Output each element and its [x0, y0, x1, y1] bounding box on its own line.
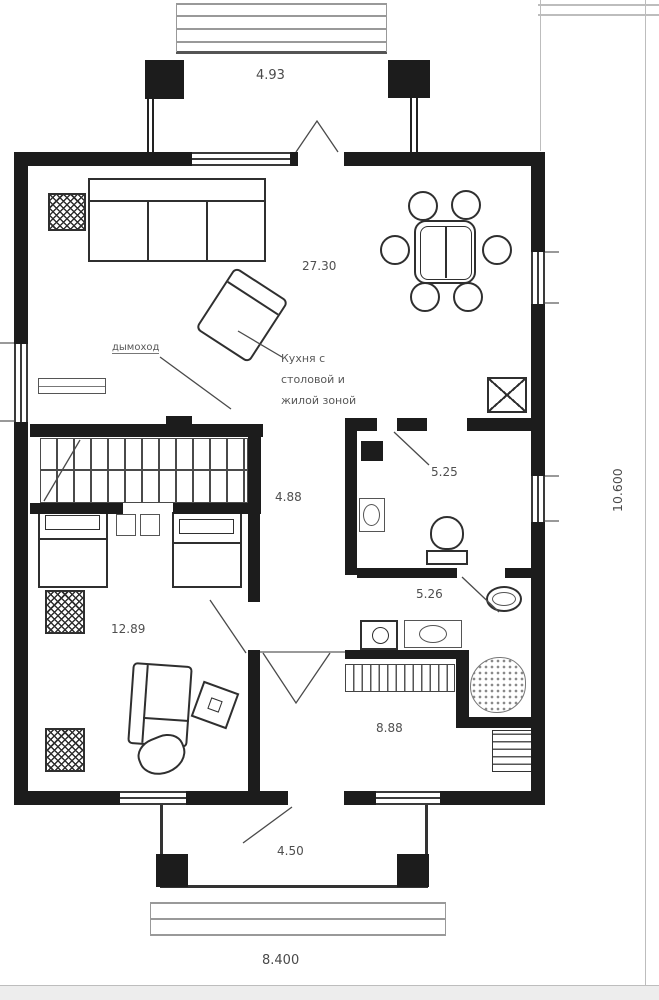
oval-sink — [486, 586, 522, 612]
wall-segment — [531, 304, 545, 476]
vanity — [404, 620, 462, 648]
oval-sink-inner — [492, 592, 516, 606]
bed — [172, 512, 242, 588]
interior-wall — [248, 514, 260, 602]
entry-door-swing — [296, 121, 338, 152]
interior-wall — [345, 418, 357, 575]
area-bedroom: 12.89 — [111, 623, 145, 635]
porch-pillar — [145, 60, 184, 99]
window — [376, 791, 440, 805]
armchair-back-line — [227, 281, 278, 315]
vanity-basin — [419, 625, 447, 643]
porch-step-side — [445, 902, 446, 935]
sheet-margin-strip — [0, 986, 659, 1000]
area-hall: 4.88 — [275, 491, 302, 503]
porch-edge — [160, 885, 427, 888]
washing-machine — [360, 620, 398, 650]
bed-blanket-line — [40, 538, 106, 540]
fireplace — [48, 193, 86, 231]
wall-segment — [14, 422, 28, 805]
dining-table — [414, 220, 476, 284]
interior-wall — [467, 418, 531, 431]
window — [120, 791, 186, 805]
door-threshold — [260, 651, 345, 653]
floor-grate — [345, 664, 455, 692]
shower-tray — [470, 657, 526, 713]
nightstand — [140, 514, 160, 536]
door-leaf — [361, 441, 383, 461]
flue-block — [45, 590, 85, 634]
window — [531, 252, 545, 304]
porch-step-line — [150, 934, 446, 936]
dining-chair — [410, 282, 440, 312]
interior-wall — [248, 424, 261, 514]
sill-tick — [545, 251, 559, 253]
area-bathroom: 5.26 — [416, 588, 443, 600]
porch-pillar — [156, 854, 188, 887]
interior-wall — [505, 568, 531, 578]
exit-door-swing — [243, 807, 292, 843]
interior-wall — [357, 418, 377, 431]
sill-tick — [545, 520, 559, 522]
room-name-line: Кухня с — [281, 348, 356, 369]
title-line-vertical — [540, 0, 541, 151]
wall-segment — [290, 152, 298, 166]
entry-step-line — [176, 41, 387, 43]
area-porch: 4.50 — [277, 845, 304, 857]
label-leader — [160, 357, 231, 409]
room-name-kitchen-living: Кухня с столовой и жилой зоной — [281, 348, 356, 411]
entry-step-line — [176, 15, 387, 17]
entry-step-side — [176, 3, 177, 52]
side-table — [191, 681, 240, 730]
wc-sink-basin — [363, 504, 380, 526]
bed-pillow — [45, 515, 100, 530]
dining-chair — [482, 235, 512, 265]
interior-wall — [248, 650, 260, 791]
wall-segment — [531, 152, 545, 252]
area-entry-hall: 8.88 — [376, 722, 403, 734]
entry-step-line — [176, 28, 387, 30]
bedroom-door-swing — [210, 600, 246, 653]
porch-pillar — [397, 854, 429, 887]
title-line-2 — [538, 14, 659, 16]
wall-segment — [440, 791, 545, 805]
entry-step-line — [176, 3, 387, 5]
hall-door-swing — [263, 653, 330, 703]
wall-segment — [344, 791, 376, 805]
wall-segment — [186, 791, 288, 805]
interior-wall — [345, 650, 460, 659]
chimney-block — [487, 377, 527, 413]
wall-segment — [14, 791, 120, 805]
porch-pillar — [388, 60, 430, 98]
lounge-chair-back-line — [141, 665, 148, 743]
dimension-entry-width: 4.93 — [256, 69, 285, 82]
wall-segment — [14, 152, 28, 344]
wall-segment — [14, 152, 192, 166]
stair-mid-line — [41, 469, 247, 471]
wc-sink — [359, 498, 385, 532]
wall-segment — [344, 152, 531, 166]
wc-door-swing — [394, 432, 429, 465]
interior-wall — [173, 503, 257, 514]
chimney-pier — [166, 416, 192, 425]
sofa-cushion-divider — [147, 202, 149, 260]
area-kitchen-living: 27.30 — [302, 260, 336, 272]
dining-chair — [408, 191, 438, 221]
bed-blanket-line — [174, 542, 240, 544]
toilet-bowl — [430, 516, 464, 550]
sill-tick — [0, 420, 14, 422]
entry-step-side — [386, 3, 387, 52]
room-name-line: жилой зоной — [281, 390, 356, 411]
sill-tick — [545, 302, 559, 304]
dining-chair — [380, 235, 410, 265]
sill-tick — [0, 342, 14, 344]
interior-wall — [456, 717, 531, 728]
flue-block — [45, 728, 85, 772]
wall-segment — [531, 522, 545, 805]
nightstand — [116, 514, 136, 536]
porch-step-line — [150, 918, 446, 920]
lounge-chair-seat-line — [143, 717, 189, 722]
interior-wall — [30, 424, 263, 437]
sill-tick — [545, 475, 559, 477]
window — [14, 344, 28, 422]
callout-chimney: дымоход — [112, 342, 159, 354]
bed — [38, 508, 108, 588]
sofa-back-line — [90, 200, 264, 202]
dimension-overall-depth: 10.600 — [610, 438, 625, 512]
room-name-line: столовой и — [281, 369, 356, 390]
window — [531, 476, 545, 522]
washing-machine-drum — [372, 627, 389, 644]
interior-wall — [397, 418, 427, 431]
canopy-post-line — [410, 98, 418, 152]
armchair — [195, 267, 289, 364]
staircase — [40, 438, 248, 503]
dimension-overall-width: 8.400 — [262, 954, 299, 967]
sofa-cushion-divider — [206, 202, 208, 260]
interior-wall — [357, 568, 457, 578]
bed-pillow — [179, 519, 234, 534]
sheet-border-vertical — [645, 0, 646, 1000]
interior-wall — [30, 503, 123, 514]
sofa — [88, 178, 266, 262]
porch-step-side — [150, 902, 151, 935]
area-wc: 5.25 — [431, 466, 458, 478]
window — [192, 152, 290, 166]
canopy-post-line — [147, 99, 154, 152]
interior-wall — [456, 650, 469, 727]
porch-step-line — [150, 902, 446, 904]
title-line-1 — [538, 4, 659, 6]
dining-chair — [453, 282, 483, 312]
dining-chair — [451, 190, 481, 220]
floor-plan-drawing: 4.93 27.30 Кухня с столовой и жилой зоно… — [0, 0, 659, 1000]
dining-table-leaf-line — [445, 226, 447, 278]
tv-bench — [38, 378, 106, 394]
radiator — [492, 730, 532, 772]
side-table-center — [207, 697, 222, 712]
entry-canopy-edge — [176, 51, 387, 54]
toilet-tank — [426, 550, 468, 565]
